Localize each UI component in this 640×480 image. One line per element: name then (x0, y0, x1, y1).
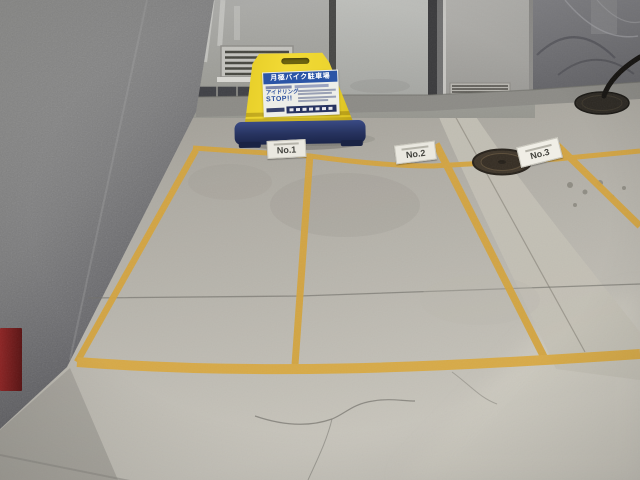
sign-handle-slot (281, 58, 309, 64)
sign-board: 月極バイク駐車場 アイドリング STOP!! (235, 49, 365, 149)
sign-panel: 月極バイク駐車場 アイドリング STOP!! (262, 70, 340, 118)
sign-foot (341, 140, 363, 146)
parking-photo: 月極バイク駐車場 アイドリング STOP!! (0, 0, 640, 480)
sign-foot (239, 142, 261, 148)
sign-phone-bar (286, 104, 336, 113)
sign-mid-section: アイドリング STOP!! (263, 86, 340, 105)
idling-stop-text: アイドリング STOP!! (266, 89, 297, 105)
sign-logo (266, 107, 284, 112)
sign-fine-print-block (298, 87, 337, 103)
space-marker-no1: No.1 (267, 139, 307, 159)
phone-digits (289, 106, 333, 111)
